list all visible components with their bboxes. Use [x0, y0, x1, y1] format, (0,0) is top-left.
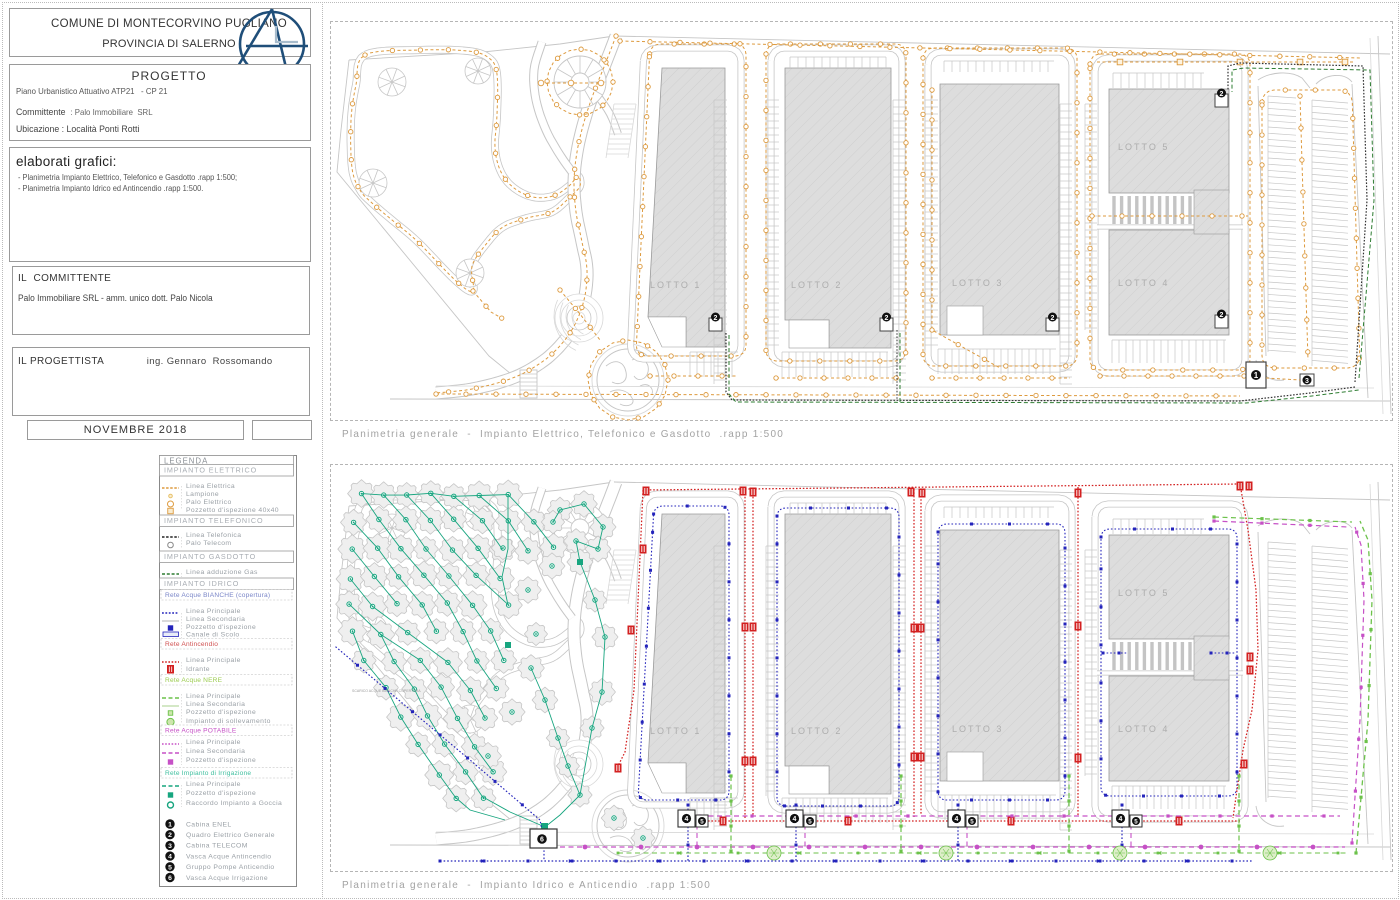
svg-text:2: 2 — [885, 315, 889, 322]
svg-text:Pozzetto d'ispezione: Pozzetto d'ispezione — [186, 709, 256, 716]
svg-text:Impianto di sollevamento: Impianto di sollevamento — [186, 718, 271, 725]
svg-text:Cabina TELECOM: Cabina TELECOM — [186, 843, 248, 850]
svg-text:4: 4 — [955, 816, 959, 823]
svg-text:Pozzetto d'ispezione: Pozzetto d'ispezione — [186, 790, 256, 797]
svg-text:Linea Principale: Linea Principale — [186, 781, 241, 788]
svg-text:5: 5 — [700, 818, 704, 825]
svg-text:5: 5 — [970, 818, 974, 825]
svg-text:Linea Secondaria: Linea Secondaria — [186, 748, 245, 755]
svg-text:5: 5 — [1134, 818, 1138, 825]
svg-text:1: 1 — [1254, 371, 1259, 380]
svg-text:Idrante: Idrante — [186, 666, 210, 673]
svg-text:Palo Elettrico: Palo Elettrico — [186, 499, 232, 506]
svg-text:Linea Secondaria: Linea Secondaria — [186, 701, 245, 708]
svg-text:2: 2 — [1051, 315, 1055, 322]
svg-text:IMPIANTO TELEFONICO: IMPIANTO TELEFONICO — [164, 516, 264, 525]
svg-text:4: 4 — [168, 854, 172, 861]
svg-text:4: 4 — [1119, 816, 1123, 823]
svg-text:SCARICO ACQUE BIANCHE COPERTU: SCARICO ACQUE BIANCHE COPERTURA — [352, 689, 421, 693]
svg-text:Rete Acque BIANCHE (copertura): Rete Acque BIANCHE (copertura) — [165, 592, 270, 599]
svg-text:Cabina ENEL: Cabina ENEL — [186, 821, 232, 828]
svg-text:Linea Principale: Linea Principale — [186, 608, 241, 615]
svg-text:1: 1 — [168, 822, 172, 829]
svg-text:IMPIANTO IDRICO: IMPIANTO IDRICO — [164, 579, 239, 588]
svg-text:Pozzetto d'ispezione: Pozzetto d'ispezione — [186, 757, 256, 764]
svg-text:Linea Secondaria: Linea Secondaria — [186, 616, 245, 623]
svg-text:Linea Principale: Linea Principale — [186, 739, 241, 746]
svg-text:Pozzetto d'ispezione: Pozzetto d'ispezione — [186, 624, 256, 631]
svg-text:Rete Acque POTABILE: Rete Acque POTABILE — [165, 728, 237, 735]
svg-text:Linea Elettrica: Linea Elettrica — [186, 483, 235, 490]
svg-text:2: 2 — [1220, 91, 1224, 98]
svg-text:Canale di Scolo: Canale di Scolo — [186, 632, 240, 639]
svg-text:Linea adduzione Gas: Linea adduzione Gas — [186, 569, 258, 576]
svg-text:4: 4 — [685, 816, 689, 823]
svg-text:Pozzetto d'ispezione 40x40: Pozzetto d'ispezione 40x40 — [186, 507, 279, 514]
svg-text:Quadro Elettrico Generale: Quadro Elettrico Generale — [186, 832, 275, 839]
svg-text:2: 2 — [1220, 312, 1224, 319]
svg-text:5: 5 — [168, 864, 172, 871]
svg-text:3: 3 — [168, 843, 172, 850]
svg-text:Rete Acque NERE: Rete Acque NERE — [165, 677, 223, 684]
svg-text:3: 3 — [1305, 378, 1309, 385]
svg-text:Linea Principale: Linea Principale — [186, 657, 241, 664]
svg-text:2: 2 — [168, 832, 172, 839]
svg-text:Raccordo Impianto a Goccia: Raccordo Impianto a Goccia — [186, 800, 282, 807]
svg-text:2: 2 — [714, 315, 718, 322]
svg-text:4: 4 — [793, 816, 797, 823]
svg-text:Lampione: Lampione — [186, 491, 219, 498]
svg-text:Rete Impianto di Irrigazione: Rete Impianto di Irrigazione — [165, 770, 251, 777]
svg-text:Vasca Acque Irrigazione: Vasca Acque Irrigazione — [186, 875, 268, 882]
svg-text:Linea Principale: Linea Principale — [186, 693, 241, 700]
svg-text:Linea Telefonica: Linea Telefonica — [186, 532, 241, 539]
svg-text:5: 5 — [808, 818, 812, 825]
svg-text:IMPIANTO GASDOTTO: IMPIANTO GASDOTTO — [164, 552, 256, 561]
svg-text:Rete Antincendio: Rete Antincendio — [165, 641, 218, 648]
svg-text:Palo Telecom: Palo Telecom — [186, 540, 231, 547]
svg-text:Gruppo Pompe Anticendio: Gruppo Pompe Anticendio — [186, 864, 275, 871]
svg-text:IMPIANTO ELETTRICO: IMPIANTO ELETTRICO — [164, 466, 257, 475]
svg-text:6: 6 — [168, 875, 172, 882]
svg-text:Vasca Acque Antincendio: Vasca Acque Antincendio — [186, 853, 271, 860]
svg-text:6: 6 — [540, 837, 544, 844]
